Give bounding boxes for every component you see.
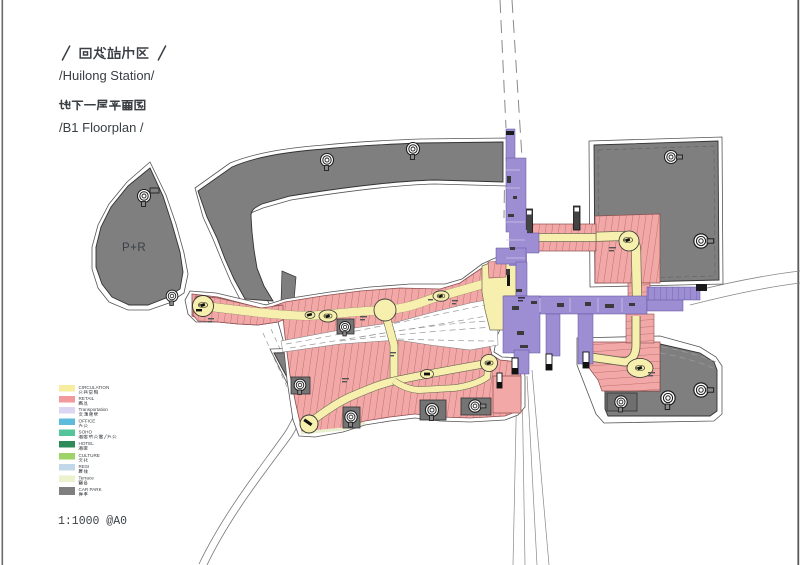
svg-text:RETAIL: RETAIL [79,396,95,401]
svg-text:RESI: RESI [79,464,90,469]
svg-text:CAR PARK: CAR PARK [79,487,103,492]
svg-text:CULTURE: CULTURE [79,453,100,458]
svg-text:1:1000 @A0: 1:1000 @A0 [58,515,127,528]
svg-text:HOTEL: HOTEL [79,441,95,446]
svg-text:CIRCULATION: CIRCULATION [79,385,110,390]
svg-text:/B1 Floorplan /: /B1 Floorplan / [59,120,144,135]
svg-text:Transportation: Transportation [79,407,109,412]
svg-text:SOHO: SOHO [79,430,93,435]
svg-text:P+R: P+R [122,242,146,254]
svg-text:OFFICE: OFFICE [79,419,96,424]
svg-text:/Huilong Station/: /Huilong Station/ [59,68,155,83]
svg-text:Terrace: Terrace [79,476,95,481]
